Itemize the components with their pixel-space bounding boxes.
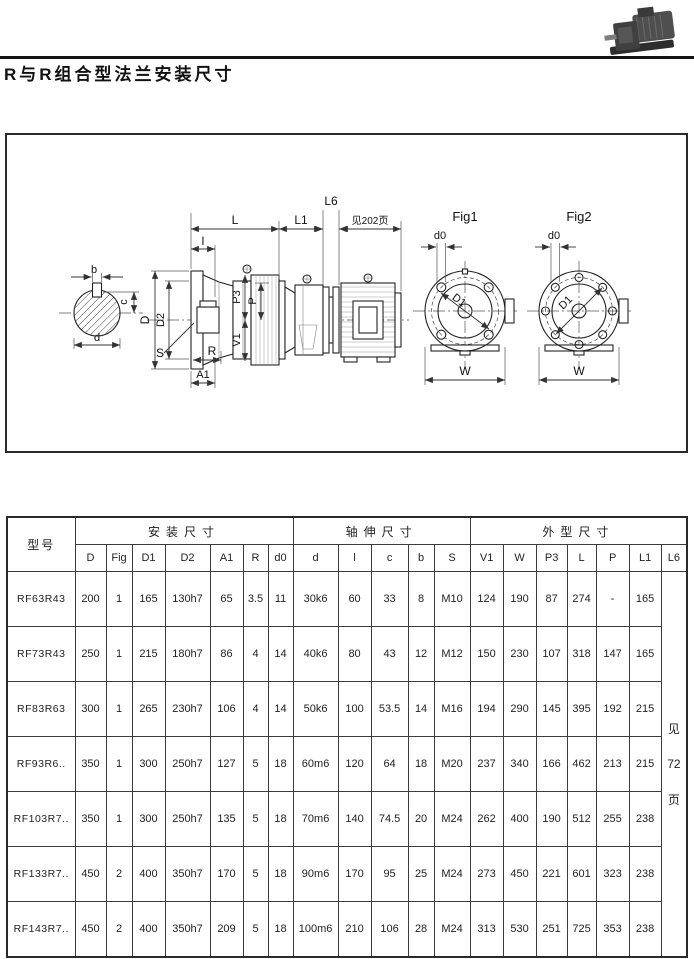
eyebolt-icon [364, 274, 372, 282]
group-header-shaft: 轴伸尺寸 [293, 517, 470, 545]
value-cell: 14 [268, 627, 293, 682]
dim-D2: D2 [155, 313, 167, 327]
value-cell: 150 [470, 627, 503, 682]
value-cell: 107 [536, 627, 567, 682]
value-cell: 87 [536, 572, 567, 627]
value-cell: 1 [106, 682, 132, 737]
value-cell: 100 [338, 682, 371, 737]
value-cell: M24 [434, 847, 470, 902]
dim-L: L [232, 213, 239, 227]
value-cell: 43 [371, 627, 408, 682]
value-cell: 400 [503, 792, 536, 847]
value-cell: 3.5 [243, 572, 268, 627]
value-cell: 530 [503, 902, 536, 958]
value-cell: 255 [596, 792, 629, 847]
col-header-l: l [338, 545, 371, 572]
dim-V1: V1 [231, 333, 243, 346]
value-cell: 165 [132, 572, 165, 627]
dim-W: W [459, 364, 471, 378]
value-cell: 209 [210, 902, 243, 958]
dim-b: b [91, 264, 97, 276]
model-cell: RF103R7.. [7, 792, 75, 847]
page-title: R与R组合型法兰安装尺寸 [4, 60, 235, 85]
dim-A1: A1 [196, 369, 209, 381]
table-group-header-row: 型号 安装尺寸 轴伸尺寸 外型尺寸 [7, 517, 687, 545]
dim-W: W [573, 364, 585, 378]
value-cell: M16 [434, 682, 470, 737]
model-cell: RF63R43 [7, 572, 75, 627]
table-body: RF63R432001165130h7653.51130k660338M1012… [7, 572, 687, 958]
value-cell: 147 [596, 627, 629, 682]
value-cell: 25 [408, 847, 434, 902]
value-cell: 18 [268, 847, 293, 902]
value-cell: 1 [106, 627, 132, 682]
value-cell: 238 [629, 902, 661, 958]
value-cell: 33 [371, 572, 408, 627]
value-cell: 300 [132, 737, 165, 792]
value-cell: 170 [338, 847, 371, 902]
value-cell: 5 [243, 847, 268, 902]
value-cell: 353 [596, 902, 629, 958]
value-cell: 14 [268, 682, 293, 737]
table-row: RF63R432001165130h7653.51130k660338M1012… [7, 572, 687, 627]
col-header-Fig: Fig [106, 545, 132, 572]
value-cell: 290 [503, 682, 536, 737]
value-cell: M10 [434, 572, 470, 627]
value-cell: 725 [567, 902, 596, 958]
value-cell: 350 [75, 792, 106, 847]
value-cell: 8 [408, 572, 434, 627]
dim-L6: L6 [324, 194, 338, 208]
gear-unit-side-view: L L1 L6 见202页 l D D2 P3 P V1 S R A1 [138, 194, 409, 388]
table-subheader-row: DFigD1D2A1Rd0dlcbSV1WP3LPL1L6 [7, 545, 687, 572]
col-header-R: R [243, 545, 268, 572]
value-cell: 601 [567, 847, 596, 902]
dimension-drawing: b c d [7, 135, 684, 451]
see-page-202-note: 见202页 [352, 215, 389, 227]
col-header-S: S [434, 545, 470, 572]
value-cell: 190 [536, 792, 567, 847]
col-header-W: W [503, 545, 536, 572]
model-cell: RF83R63 [7, 682, 75, 737]
technical-drawing-panel: b c d [5, 133, 688, 453]
value-cell: 318 [567, 627, 596, 682]
table-row: RF103R7..3501300250h713551870m614074.520… [7, 792, 687, 847]
col-header-d0: d0 [268, 545, 293, 572]
value-cell: 60 [338, 572, 371, 627]
value-cell: 50k6 [293, 682, 338, 737]
col-header-b: b [408, 545, 434, 572]
value-cell: 30k6 [293, 572, 338, 627]
value-cell: 265 [132, 682, 165, 737]
value-cell: 215 [132, 627, 165, 682]
value-cell: 250 [75, 627, 106, 682]
value-cell: 20 [408, 792, 434, 847]
value-cell: M24 [434, 902, 470, 958]
value-cell: 18 [268, 792, 293, 847]
value-cell: 350h7 [165, 847, 210, 902]
col-header-L6: L6 [661, 545, 687, 572]
value-cell: 395 [567, 682, 596, 737]
value-cell: 64 [371, 737, 408, 792]
table-row: RF83R633001265230h710641450k610053.514M1… [7, 682, 687, 737]
model-cell: RF73R43 [7, 627, 75, 682]
value-cell: 273 [470, 847, 503, 902]
value-cell: 4 [243, 682, 268, 737]
model-cell: RF143R7.. [7, 902, 75, 958]
value-cell: 28 [408, 902, 434, 958]
value-cell: 313 [470, 902, 503, 958]
value-cell: 90m6 [293, 847, 338, 902]
col-header-c: c [371, 545, 408, 572]
value-cell: 40k6 [293, 627, 338, 682]
value-cell: 230h7 [165, 682, 210, 737]
shaft-cross-section: b c d [59, 264, 143, 349]
value-cell: 165 [629, 572, 661, 627]
value-cell: 323 [596, 847, 629, 902]
value-cell: 512 [567, 792, 596, 847]
value-cell: 140 [338, 792, 371, 847]
dim-P: P [247, 297, 259, 304]
value-cell: 130h7 [165, 572, 210, 627]
motor-outline [341, 274, 401, 362]
dim-S: S [156, 346, 164, 360]
col-header-L: L [567, 545, 596, 572]
l6-see-page-72-cell: 见72页 [661, 572, 687, 958]
col-header-V1: V1 [470, 545, 503, 572]
eyebolt-icon [243, 265, 251, 273]
col-header-A1: A1 [210, 545, 243, 572]
value-cell: 12 [408, 627, 434, 682]
table-row: RF143R7..4502400350h7209518100m621010628… [7, 902, 687, 958]
value-cell: 4 [243, 627, 268, 682]
value-cell: 106 [210, 682, 243, 737]
value-cell: 262 [470, 792, 503, 847]
col-header-P3: P3 [536, 545, 567, 572]
value-cell: 124 [470, 572, 503, 627]
value-cell: 462 [567, 737, 596, 792]
header-rule [0, 56, 694, 59]
dim-P3: P3 [231, 290, 243, 303]
value-cell: 166 [536, 737, 567, 792]
table-row: RF73R432501215180h78641440k6804312M12150… [7, 627, 687, 682]
value-cell: 1 [106, 737, 132, 792]
value-cell: 135 [210, 792, 243, 847]
value-cell: 210 [338, 902, 371, 958]
value-cell: 221 [536, 847, 567, 902]
value-cell: 2 [106, 902, 132, 958]
value-cell: 340 [503, 737, 536, 792]
product-photo [600, 5, 686, 57]
dim-d: d [94, 332, 100, 344]
value-cell: 1 [106, 792, 132, 847]
col-header-D: D [75, 545, 106, 572]
table-row: RF93R6..3501300250h712751860m61206418M20… [7, 737, 687, 792]
value-cell: 250h7 [165, 792, 210, 847]
dim-R: R [208, 344, 217, 358]
fig1-label: Fig1 [452, 209, 477, 224]
dim-d0: d0 [434, 230, 446, 242]
value-cell: 170 [210, 847, 243, 902]
model-column-header: 型号 [7, 517, 75, 572]
value-cell: 230 [503, 627, 536, 682]
col-header-d: d [293, 545, 338, 572]
model-cell: RF93R6.. [7, 737, 75, 792]
value-cell: 2 [106, 847, 132, 902]
value-cell: 300 [75, 682, 106, 737]
value-cell: 400 [132, 847, 165, 902]
value-cell: 237 [470, 737, 503, 792]
value-cell: 1 [106, 572, 132, 627]
value-cell: 100m6 [293, 902, 338, 958]
value-cell: 300 [132, 792, 165, 847]
value-cell: 180h7 [165, 627, 210, 682]
value-cell: 120 [338, 737, 371, 792]
fig2-label: Fig2 [566, 209, 591, 224]
value-cell: 165 [629, 627, 661, 682]
value-cell: 192 [596, 682, 629, 737]
dim-L1: L1 [294, 213, 308, 227]
value-cell: 5 [243, 792, 268, 847]
value-cell: 350 [75, 737, 106, 792]
dim-c: c [118, 299, 130, 305]
value-cell: 215 [629, 737, 661, 792]
col-header-D1: D1 [132, 545, 165, 572]
value-cell: 127 [210, 737, 243, 792]
value-cell: 18 [268, 902, 293, 958]
value-cell: 450 [503, 847, 536, 902]
dim-d0: d0 [548, 230, 560, 242]
value-cell: 190 [503, 572, 536, 627]
value-cell: 60m6 [293, 737, 338, 792]
fig2-flange-view: Fig2 D1 d0 W [527, 209, 631, 385]
value-cell: 238 [629, 847, 661, 902]
value-cell: 400 [132, 902, 165, 958]
table-row: RF133R7..4502400350h717051890m61709525M2… [7, 847, 687, 902]
value-cell: 350h7 [165, 902, 210, 958]
value-cell: 106 [371, 902, 408, 958]
gearmotor-photo-image [600, 5, 686, 57]
value-cell: 238 [629, 792, 661, 847]
value-cell: 5 [243, 737, 268, 792]
col-header-L1: L1 [629, 545, 661, 572]
col-header-D2: D2 [165, 545, 210, 572]
value-cell: 250h7 [165, 737, 210, 792]
dim-l: l [202, 234, 205, 248]
dim-D: D [138, 315, 152, 324]
value-cell: 11 [268, 572, 293, 627]
value-cell: M20 [434, 737, 470, 792]
group-header-overall: 外型尺寸 [470, 517, 687, 545]
value-cell: M24 [434, 792, 470, 847]
value-cell: 450 [75, 847, 106, 902]
dimension-table-wrap: 型号 安装尺寸 轴伸尺寸 外型尺寸 DFigD1D2A1Rd0dlcbSV1WP… [6, 516, 688, 958]
model-cell: RF133R7.. [7, 847, 75, 902]
value-cell: 74.5 [371, 792, 408, 847]
fig1-flange-view: Fig1 D1 d0 W [413, 209, 517, 385]
value-cell: 18 [408, 737, 434, 792]
value-cell: 194 [470, 682, 503, 737]
value-cell: 18 [268, 737, 293, 792]
value-cell: 70m6 [293, 792, 338, 847]
value-cell: 200 [75, 572, 106, 627]
group-header-mounting: 安装尺寸 [75, 517, 293, 545]
value-cell: 86 [210, 627, 243, 682]
value-cell: 274 [567, 572, 596, 627]
value-cell: 450 [75, 902, 106, 958]
value-cell: 215 [629, 682, 661, 737]
value-cell: 251 [536, 902, 567, 958]
value-cell: 14 [408, 682, 434, 737]
value-cell: M12 [434, 627, 470, 682]
value-cell: 213 [596, 737, 629, 792]
value-cell: 95 [371, 847, 408, 902]
value-cell: - [596, 572, 629, 627]
dimension-table: 型号 安装尺寸 轴伸尺寸 外型尺寸 DFigD1D2A1Rd0dlcbSV1WP… [6, 516, 688, 958]
value-cell: 80 [338, 627, 371, 682]
value-cell: 53.5 [371, 682, 408, 737]
col-header-P: P [596, 545, 629, 572]
value-cell: 5 [243, 902, 268, 958]
value-cell: 65 [210, 572, 243, 627]
value-cell: 145 [536, 682, 567, 737]
eyebolt-icon [303, 275, 311, 283]
